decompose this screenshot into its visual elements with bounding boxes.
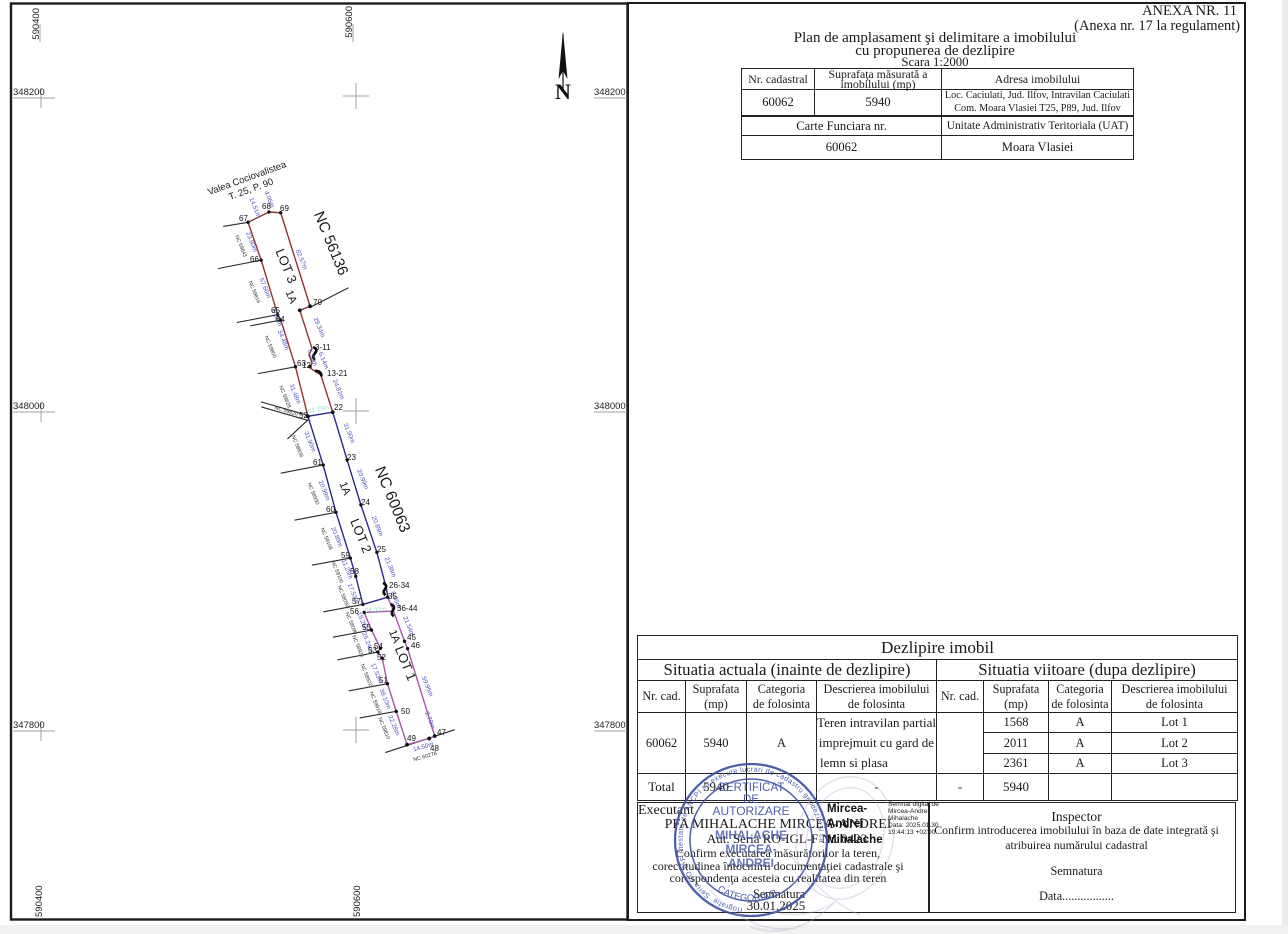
svg-text:NC 58936: NC 58936 [290,435,304,459]
svg-text:20.89m: 20.89m [370,515,384,537]
svg-text:29.34m: 29.34m [312,316,326,338]
svg-text:52: 52 [377,653,386,662]
svg-text:347800: 347800 [594,720,626,731]
svg-text:348200: 348200 [13,87,45,98]
svg-text:3-11: 3-11 [315,343,331,352]
svg-text:31.90m: 31.90m [342,422,356,444]
svg-text:1A: 1A [283,289,299,307]
svg-text:N: N [555,79,571,104]
svg-text:6.14m: 6.14m [317,351,330,370]
svg-text:26-34: 26-34 [389,581,410,590]
svg-text:1A: 1A [337,480,353,498]
svg-text:NC 59800: NC 59800 [263,335,277,359]
svg-text:CERTIFICAT: CERTIFICAT [718,782,785,794]
svg-text:23: 23 [347,453,356,462]
svg-text:58: 58 [350,567,359,576]
svg-text:MIHALACHE: MIHALACHE [715,828,787,842]
svg-text:NC 58930: NC 58930 [306,482,320,506]
svg-text:52: 52 [299,411,308,420]
svg-text:48: 48 [430,744,439,753]
svg-text:348200: 348200 [594,87,626,98]
svg-text:59: 59 [341,551,350,560]
svg-text:56: 56 [350,607,359,616]
svg-text:590400: 590400 [31,8,42,40]
svg-text:2.70m: 2.70m [423,711,436,730]
svg-text:20.99m: 20.99m [355,468,369,490]
svg-text:61: 61 [313,458,322,467]
svg-text:35: 35 [388,592,397,601]
svg-text:60: 60 [326,505,335,514]
svg-text:70: 70 [313,298,322,307]
svg-text:347800: 347800 [13,720,45,731]
svg-text:69: 69 [280,204,289,213]
svg-text:66: 66 [250,255,259,264]
svg-text:13-21: 13-21 [327,369,348,378]
svg-text:57: 57 [352,597,361,606]
svg-text:67: 67 [239,214,248,223]
svg-text:AUTORIZARE: AUTORIZARE [712,804,789,818]
svg-text:49: 49 [407,734,416,743]
svg-text:12: 12 [302,361,311,370]
svg-text:65: 65 [271,306,280,315]
svg-text:22: 22 [334,403,343,412]
svg-text:348000: 348000 [594,401,626,412]
svg-text:64: 64 [276,315,285,324]
svg-text:MIRCEA-: MIRCEA- [725,842,776,856]
svg-text:NC 59843: NC 59843 [233,234,247,258]
svg-text:55: 55 [362,623,371,632]
svg-text:47: 47 [437,728,446,737]
svg-text:24: 24 [361,498,370,507]
svg-text:04.03m: 04.03m [365,606,386,615]
svg-text:ANDREI: ANDREI [728,856,774,870]
svg-text:590600: 590600 [352,885,363,917]
svg-text:NC 56136: NC 56136 [310,209,351,278]
svg-text:21.36m: 21.36m [383,556,397,578]
svg-text:50: 50 [401,707,410,716]
svg-text:NC 59816: NC 59816 [247,280,261,304]
svg-text:51: 51 [379,676,388,685]
svg-text:31.90m: 31.90m [302,431,316,453]
svg-text:590400: 590400 [34,885,45,917]
svg-text:24.82m: 24.82m [331,379,345,401]
svg-text:68: 68 [262,202,271,211]
svg-text:14.51m: 14.51m [247,197,261,219]
svg-text:25: 25 [377,545,386,554]
svg-text:36-44: 36-44 [397,604,418,613]
svg-text:348000: 348000 [13,401,45,412]
svg-text:46: 46 [411,641,420,650]
svg-text:34.48m: 34.48m [276,329,290,351]
svg-text:590600: 590600 [344,6,355,38]
